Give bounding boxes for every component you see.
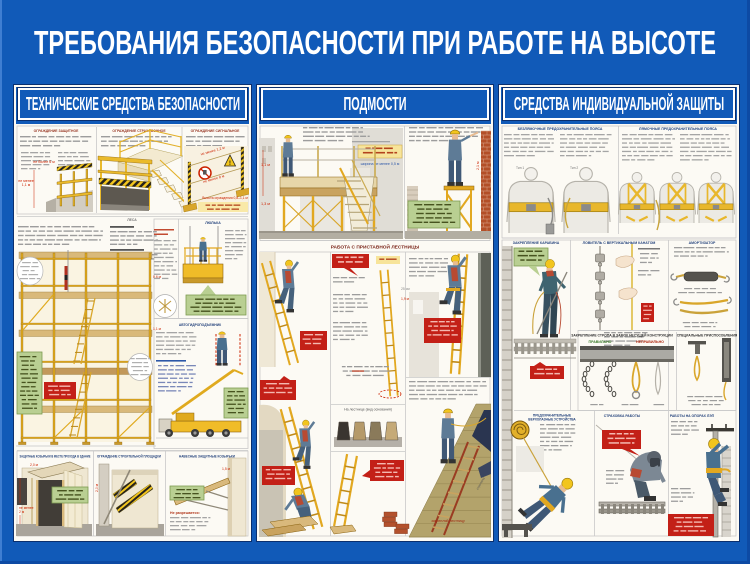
svg-text:ЗАКРЕПЛЕНИЕ КАРАБИНА: ЗАКРЕПЛЕНИЕ КАРАБИНА <box>513 241 560 245</box>
svg-text:25 см: 25 см <box>401 287 410 291</box>
svg-text:2,0 м: 2,0 м <box>30 463 39 467</box>
svg-text:АВТОГИДРОПОДЪЕМНИК: АВТОГИДРОПОДЪЕМНИК <box>179 323 222 327</box>
svg-text:1,1 м: 1,1 м <box>153 327 162 331</box>
svg-text:1,5 м: 1,5 м <box>222 467 231 471</box>
svg-text:ЛЯМОЧНЫЕ ПРЕДОХРАНИТЕЛЬНЫЕ ПОЯ: ЛЯМОЧНЫЕ ПРЕДОХРАНИТЕЛЬНЫЕ ПОЯСА <box>639 127 717 131</box>
svg-text:ЛЮЛЬКА: ЛЮЛЬКА <box>205 221 221 225</box>
svg-text:БЕЗЛЯМОЧНЫЕ ПРЕДОХРАНИТЕЛЬНЫЕ: БЕЗЛЯМОЧНЫЕ ПРЕДОХРАНИТЕЛЬНЫЕ ПОЯСА <box>518 127 603 131</box>
svg-text:ОГРАЖДЕНИЕ СТРОИТЕЛЬНОЙ ПЛОЩАД: ОГРАЖДЕНИЕ СТРОИТЕЛЬНОЙ ПЛОЩАДКИ <box>97 455 162 459</box>
svg-text:ОГРАЖДЕНИЕ СИГНАЛЬНОЕ: ОГРАЖДЕНИЕ СИГНАЛЬНОЕ <box>191 129 240 133</box>
svg-text:ЗАКРЕПЛЕНИЕ СТРОПА В ЗАМОК НЕС: ЗАКРЕПЛЕНИЕ СТРОПА В ЗАМОК НЕСУЩЕЙ КОНСТ… <box>571 334 673 338</box>
svg-text:2 м: 2 м <box>19 510 25 514</box>
svg-text:1,3 м: 1,3 м <box>261 202 270 206</box>
svg-text:Не разрешается:: Не разрешается: <box>170 511 200 515</box>
svg-text:АМОРТИЗАТОР: АМОРТИЗАТОР <box>689 241 716 245</box>
svg-text:2,1 м: 2,1 м <box>476 161 480 170</box>
svg-text:СПЕЦИАЛЬНЫЕ ПРИСПОСОБЛЕНИЯ: СПЕЦИАЛЬНЫЕ ПРИСПОСОБЛЕНИЯ <box>677 334 737 338</box>
svg-text:1,9 м: 1,9 м <box>401 297 410 301</box>
svg-text:Высота ограждения 0,8–1,1 м: Высота ограждения 0,8–1,1 м <box>202 196 248 200</box>
svg-text:НАВЕСНЫЕ ЗАЩИТНЫЕ КОЗЫРЬКИ: НАВЕСНЫЕ ЗАЩИТНЫЕ КОЗЫРЬКИ <box>179 455 236 459</box>
svg-text:2,0 м: 2,0 м <box>95 483 99 492</box>
svg-text:1,1 м: 1,1 м <box>261 163 270 167</box>
svg-text:закрепляй лестницу: закрепляй лестницу <box>431 519 465 523</box>
svg-text:РАБОТА С ПРИСТАВНОЙ ЛЕСТНИЦЫ: РАБОТА С ПРИСТАВНОЙ ЛЕСТНИЦЫ <box>331 243 420 251</box>
svg-text:не более 6 м: не более 6 м <box>33 160 55 164</box>
svg-text:ВЕРХОЛАЗНЫЕ УСТРОЙСТВА: ВЕРХОЛАЗНЫЕ УСТРОЙСТВА <box>528 418 576 422</box>
svg-text:ЛОВИТЕЛЬ С ВЕРТИКАЛЬНЫМ КАНАТО: ЛОВИТЕЛЬ С ВЕРТИКАЛЬНЫМ КАНАТОМ <box>583 241 656 245</box>
svg-text:1,1 м: 1,1 м <box>22 183 31 187</box>
svg-text:НЕПРАВИЛЬНО: НЕПРАВИЛЬНО <box>636 340 664 344</box>
svg-text:!: ! <box>229 160 231 167</box>
svg-text:ОГРАЖДЕНИЕ ЗАЩИТНОЕ: ОГРАЖДЕНИЕ ЗАЩИТНОЕ <box>34 129 79 133</box>
svg-text:На лестнице (вид основания): На лестнице (вид основания) <box>344 408 392 412</box>
svg-text:ширина не менее 0,5 м: ширина не менее 0,5 м <box>361 162 400 166</box>
svg-text:ЗАЩИТНЫЕ КОЗЫРЬКИ В МЕСТЕ ПРОХ: ЗАЩИТНЫЕ КОЗЫРЬКИ В МЕСТЕ ПРОХОДА В ЗДАН… <box>20 455 92 459</box>
svg-text:ЛЕСА: ЛЕСА <box>127 218 137 222</box>
svg-text:Тип 2: Тип 2 <box>570 166 578 170</box>
svg-text:РАБОТЫ НА ОПОРАХ ЛЭП: РАБОТЫ НА ОПОРАХ ЛЭП <box>670 414 715 418</box>
svg-text:СТРАХОВКА РАБОТЫ: СТРАХОВКА РАБОТЫ <box>604 414 641 418</box>
svg-text:Тип 1: Тип 1 <box>516 166 524 170</box>
svg-text:ПРАВИЛЬНО: ПРАВИЛЬНО <box>589 340 612 344</box>
